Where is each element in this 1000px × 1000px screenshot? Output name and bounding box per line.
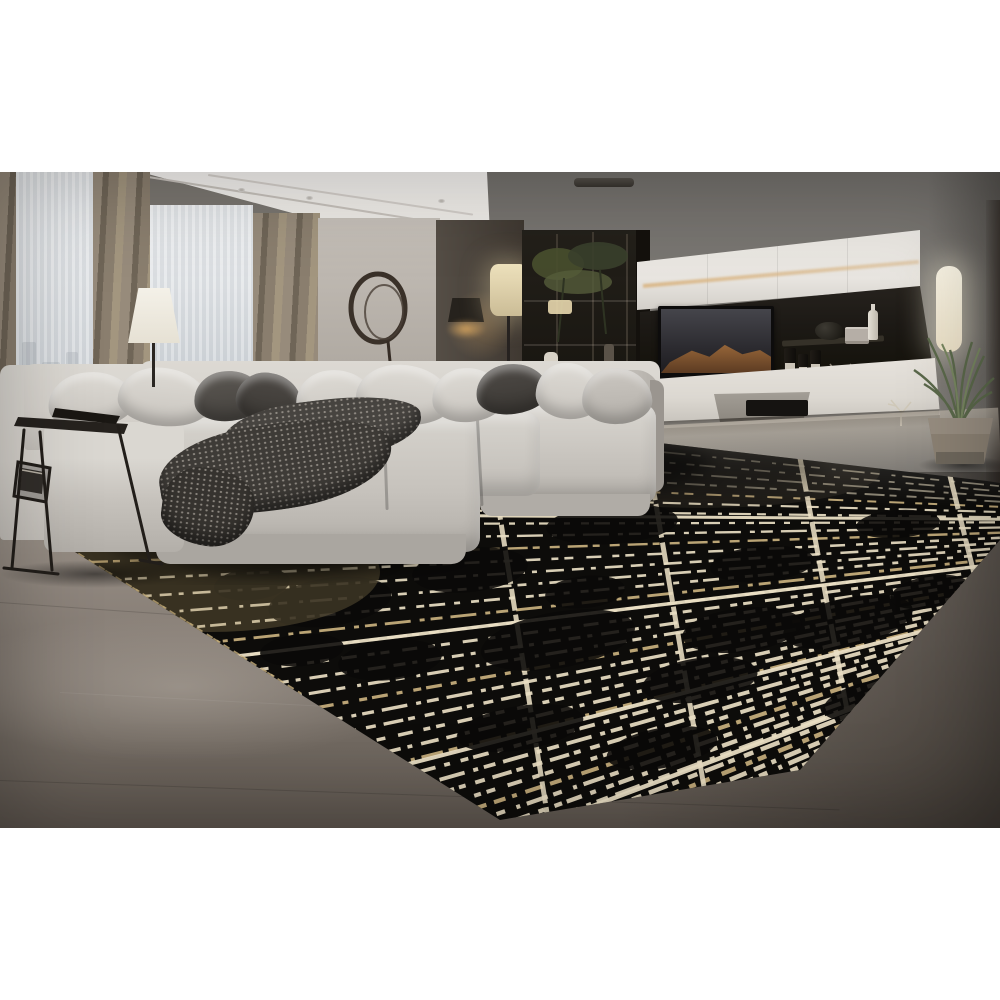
floor-lamp-pole [152,343,155,387]
photo-page [0,0,1000,1000]
potted-plant [880,322,1000,472]
living-room-photo [0,172,1000,828]
side-c-table [0,402,200,582]
sofa-base-right [480,494,650,516]
